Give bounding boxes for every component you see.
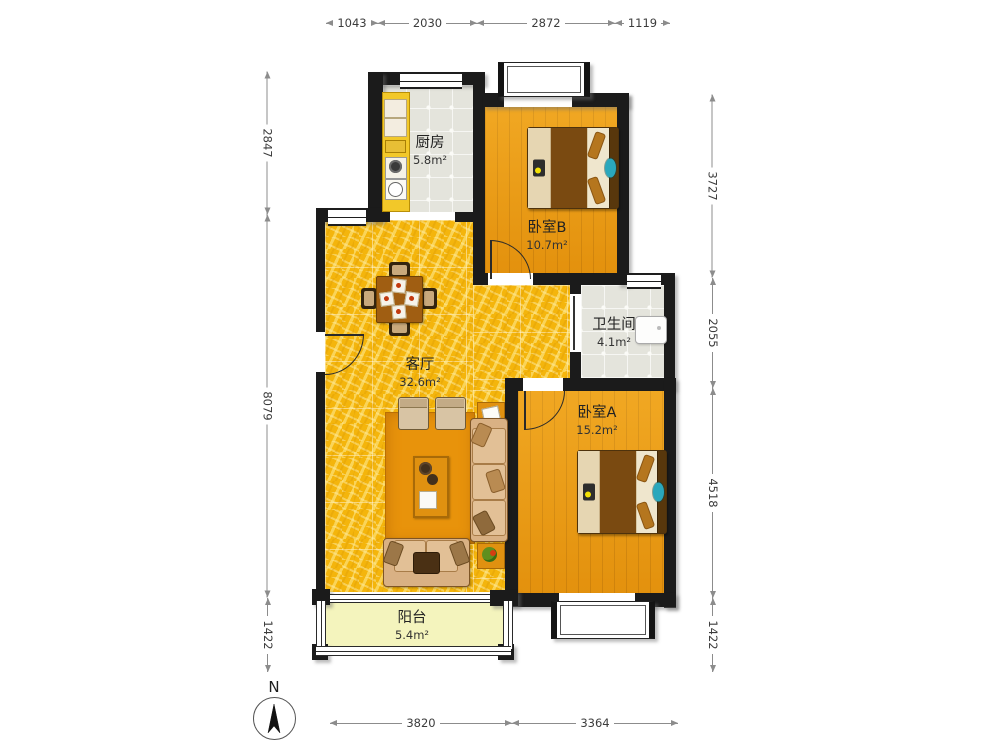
dimension-right-3: 4518 [704, 388, 722, 598]
stove-burner-icon [389, 160, 402, 173]
dim-line [512, 723, 576, 724]
bowl-icon [419, 462, 432, 475]
dimension-top-4: 1119 [615, 14, 670, 32]
wall [368, 72, 383, 217]
room-area: 5.4m² [395, 628, 429, 643]
chair-seat [392, 323, 407, 333]
room-label-bedroom-b: 卧室B 10.7m² [526, 219, 567, 253]
bed-bedroom-a [577, 450, 667, 534]
floor-plan-canvas: 厨房 5.8m² 卧室B 10.7m² 卫生间 4.1m² 客厅 32.6m² … [0, 0, 1000, 750]
bay-window-frame [560, 605, 646, 635]
living-room-floor-hall [473, 285, 570, 390]
sink-basin-icon [388, 182, 403, 197]
dim-line [268, 654, 269, 672]
dim-line [440, 723, 512, 724]
dimension-top-3: 2872 [477, 14, 615, 32]
dimension-left-3: 1422 [259, 598, 277, 672]
chair-seat [364, 291, 374, 306]
bed-foot-panel [578, 451, 600, 533]
dimension-label: 2030 [409, 16, 446, 30]
room-name: 卧室B [526, 219, 567, 238]
plant-flower-icon [490, 550, 496, 556]
dining-chair [361, 288, 377, 309]
bedroom-b-bay-window [498, 62, 590, 97]
dim-line [712, 205, 713, 278]
bath-fixture-knob [657, 326, 661, 330]
bowl-icon [427, 474, 438, 485]
dim-line [615, 23, 624, 24]
dimension-label: 2055 [706, 314, 720, 351]
room-name: 厨房 [413, 134, 447, 153]
dim-line [477, 23, 527, 24]
dimension-label: 1043 [333, 16, 370, 30]
bed-bedroom-b [527, 127, 619, 209]
dimension-bottom-2: 3364 [512, 714, 678, 732]
wall [316, 208, 325, 605]
dimension-label: 3364 [576, 716, 613, 730]
pillow [587, 176, 607, 205]
dim-line [268, 598, 269, 616]
dim-line [713, 598, 714, 616]
compass-circle [253, 697, 296, 740]
dim-line [330, 723, 402, 724]
kitchen-window [400, 72, 462, 89]
dimension-bottom-1: 3820 [330, 714, 512, 732]
dim-line [267, 162, 268, 215]
north-arrow-icon [257, 702, 291, 736]
place-setting [379, 291, 395, 307]
armchair [435, 397, 466, 430]
balcony-window-right [503, 601, 513, 649]
bed-remote-icon [533, 160, 545, 177]
entry-door-opening [316, 332, 325, 372]
bathroom-door-opening [570, 294, 581, 352]
dim-line [712, 95, 713, 168]
dimension-right-1: 3727 [704, 95, 722, 278]
dim-line [565, 23, 615, 24]
room-area: 32.6m² [399, 375, 440, 390]
kitchen-shelf [385, 140, 406, 153]
tray-icon [419, 491, 437, 509]
dimension-left-2: 8079 [259, 215, 277, 598]
dimension-top-2: 2030 [378, 14, 477, 32]
chair-seat [424, 291, 434, 306]
place-setting [391, 278, 406, 293]
kitchen-cabinet [384, 99, 407, 118]
dimension-label: 3820 [402, 716, 439, 730]
dim-line [326, 23, 333, 24]
balcony-window-front [316, 646, 511, 656]
dimension-label: 2847 [261, 124, 275, 161]
kitchen-doorway-jamb [455, 212, 483, 222]
room-label-bathroom: 卫生间 4.1m² [592, 316, 636, 350]
north-label: N [252, 678, 296, 696]
bedroom-a-bay-window [551, 601, 655, 639]
dim-line [713, 388, 714, 474]
dimension-label: 1119 [624, 16, 661, 30]
room-name: 客厅 [399, 356, 440, 375]
room-name: 卧室A [576, 404, 617, 423]
dining-chair [421, 288, 437, 309]
dim-line [713, 654, 714, 672]
armchair [398, 397, 429, 430]
room-area: 15.2m² [576, 423, 617, 438]
dimension-right-4: 1422 [704, 598, 722, 672]
room-name: 阳台 [395, 609, 429, 628]
dim-line [267, 215, 268, 388]
dim-line [713, 278, 714, 314]
pillow [635, 501, 655, 530]
bed-foot-panel [528, 128, 551, 208]
bathroom-sliding-door [573, 296, 575, 350]
bath-fixture [635, 316, 667, 344]
dimension-label: 1422 [706, 616, 720, 653]
dimension-label: 3727 [706, 167, 720, 204]
room-label-kitchen: 厨房 5.8m² [413, 134, 447, 168]
dim-line [267, 72, 268, 125]
dim-line [614, 723, 678, 724]
dimension-label: 4518 [706, 474, 720, 511]
chair-seat [392, 265, 407, 275]
dimension-left-1: 2847 [259, 72, 277, 215]
place-setting [404, 291, 420, 307]
dimension-label: 2872 [527, 16, 564, 30]
dimension-right-2: 2055 [704, 278, 722, 388]
dim-line [713, 512, 714, 598]
pouf-icon [605, 159, 616, 178]
dimension-label: 8079 [261, 387, 275, 424]
bay-window-frame [507, 66, 581, 93]
room-area: 10.7m² [526, 238, 567, 253]
balcony-window-left [316, 601, 326, 649]
pillow [587, 131, 607, 160]
pillow [635, 454, 655, 483]
bed-pillow-zone [636, 451, 657, 533]
bathroom-window [627, 273, 661, 289]
place-setting [391, 304, 406, 319]
dim-line [371, 23, 378, 24]
dimension-label: 1422 [261, 616, 275, 653]
bed-blanket [551, 128, 588, 208]
room-label-balcony: 阳台 5.4m² [395, 609, 429, 643]
ottoman [413, 552, 440, 574]
room-area: 5.8m² [413, 153, 447, 168]
living-room-window [328, 208, 366, 226]
room-name: 卫生间 [592, 316, 636, 335]
room-area: 4.1m² [592, 335, 636, 350]
room-label-bedroom-a: 卧室A 15.2m² [576, 404, 617, 438]
bedroom-a-door-opening [523, 378, 563, 391]
kitchen-cabinet [384, 118, 407, 137]
dim-line [446, 23, 477, 24]
bed-blanket [600, 451, 636, 533]
bed-pillow-zone [587, 128, 609, 208]
kitchen-doorway-jamb [368, 212, 390, 222]
balcony-sliding-door [330, 594, 490, 603]
north-indicator: N [252, 678, 296, 740]
dim-line [267, 425, 268, 598]
bed-remote-icon [583, 484, 595, 501]
pouf-icon [653, 483, 664, 502]
dim-line [378, 23, 409, 24]
dim-line [713, 352, 714, 388]
dim-line [661, 23, 670, 24]
dimension-top-1: 1043 [326, 14, 378, 32]
room-label-living: 客厅 32.6m² [399, 356, 440, 390]
